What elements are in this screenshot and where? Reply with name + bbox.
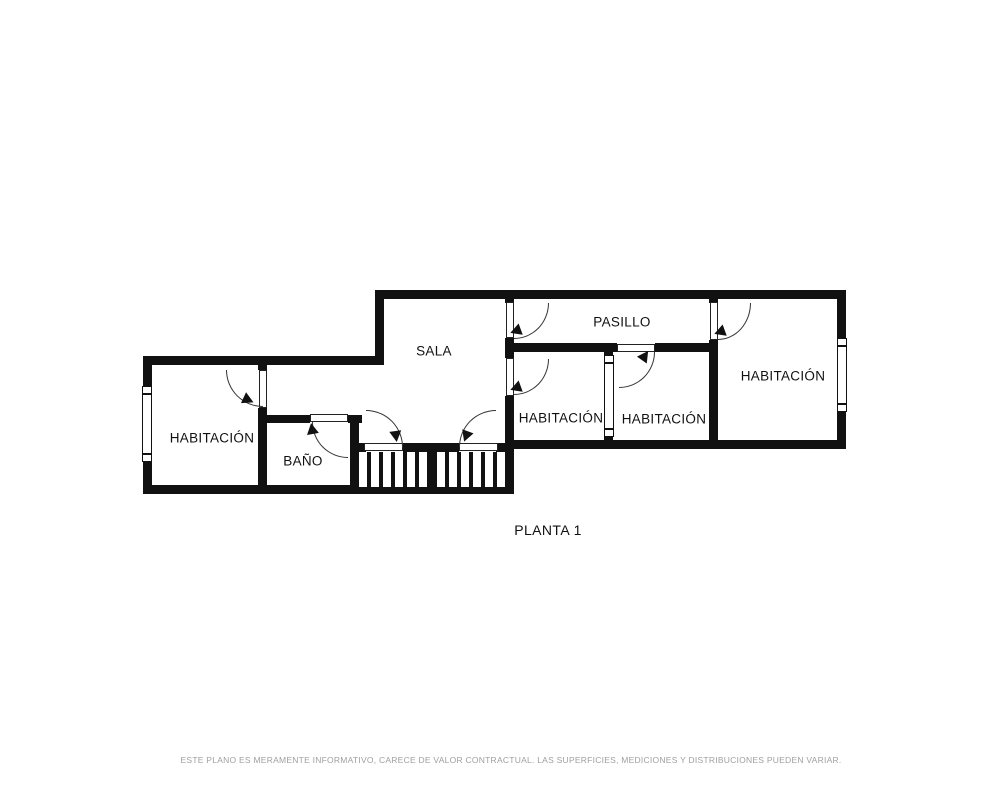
window-pane-line bbox=[143, 393, 151, 395]
room-label-bedroom-mid-2: HABITACIÓN bbox=[622, 412, 707, 427]
window-pane-line bbox=[143, 453, 151, 455]
room-label-living-room: SALA bbox=[416, 344, 452, 359]
wall-midhab-divider-top bbox=[604, 343, 613, 355]
wall-pasillo-bottom-left bbox=[505, 343, 617, 352]
wall-righthab-left bbox=[709, 340, 718, 449]
window-pane-line bbox=[838, 403, 846, 405]
wall-left-outer-upper bbox=[143, 356, 152, 386]
floorplan-planta-1: HABITACIÓN BAÑO SALA PASILLO HABITACIÓN … bbox=[0, 0, 1000, 800]
wall-right-outer-upper bbox=[837, 290, 846, 338]
window-left-facade bbox=[142, 386, 152, 462]
wall-stairs-divider bbox=[426, 444, 437, 494]
window-pane-line bbox=[605, 428, 613, 430]
wall-mid-bottom-outer bbox=[505, 440, 846, 449]
room-label-hallway: PASILLO bbox=[593, 315, 650, 330]
room-label-bedroom-left: HABITACIÓN bbox=[170, 431, 255, 446]
window-right-facade bbox=[837, 338, 847, 412]
window-between-bedrooms bbox=[604, 355, 614, 437]
room-label-bedroom-mid-1: HABITACIÓN bbox=[519, 411, 604, 426]
wall-lefthab-right-upper bbox=[258, 360, 267, 370]
door-arrow-stairs-left bbox=[389, 430, 402, 443]
window-pane-line bbox=[605, 362, 613, 364]
door-arrow-bathroom bbox=[305, 422, 319, 435]
disclaimer-text: ESTE PLANO ES MERAMENTE INFORMATIVO, CAR… bbox=[181, 755, 842, 765]
room-label-bathroom: BAÑO bbox=[283, 454, 322, 469]
wall-sala-left bbox=[375, 290, 384, 365]
wall-bano-right bbox=[350, 415, 359, 494]
window-pane-line bbox=[838, 345, 846, 347]
wall-right-outer-lower bbox=[837, 412, 846, 449]
wall-bano-top-left bbox=[258, 415, 310, 423]
floor-title: PLANTA 1 bbox=[514, 522, 582, 538]
room-label-bedroom-right: HABITACIÓN bbox=[741, 369, 826, 384]
door-leaf-bathroom bbox=[310, 414, 348, 422]
staircase-left-flight bbox=[359, 452, 427, 487]
staircase-right-flight bbox=[437, 452, 505, 487]
wall-midhab-divider-bottom bbox=[604, 437, 613, 449]
wall-top-outer bbox=[375, 290, 846, 299]
